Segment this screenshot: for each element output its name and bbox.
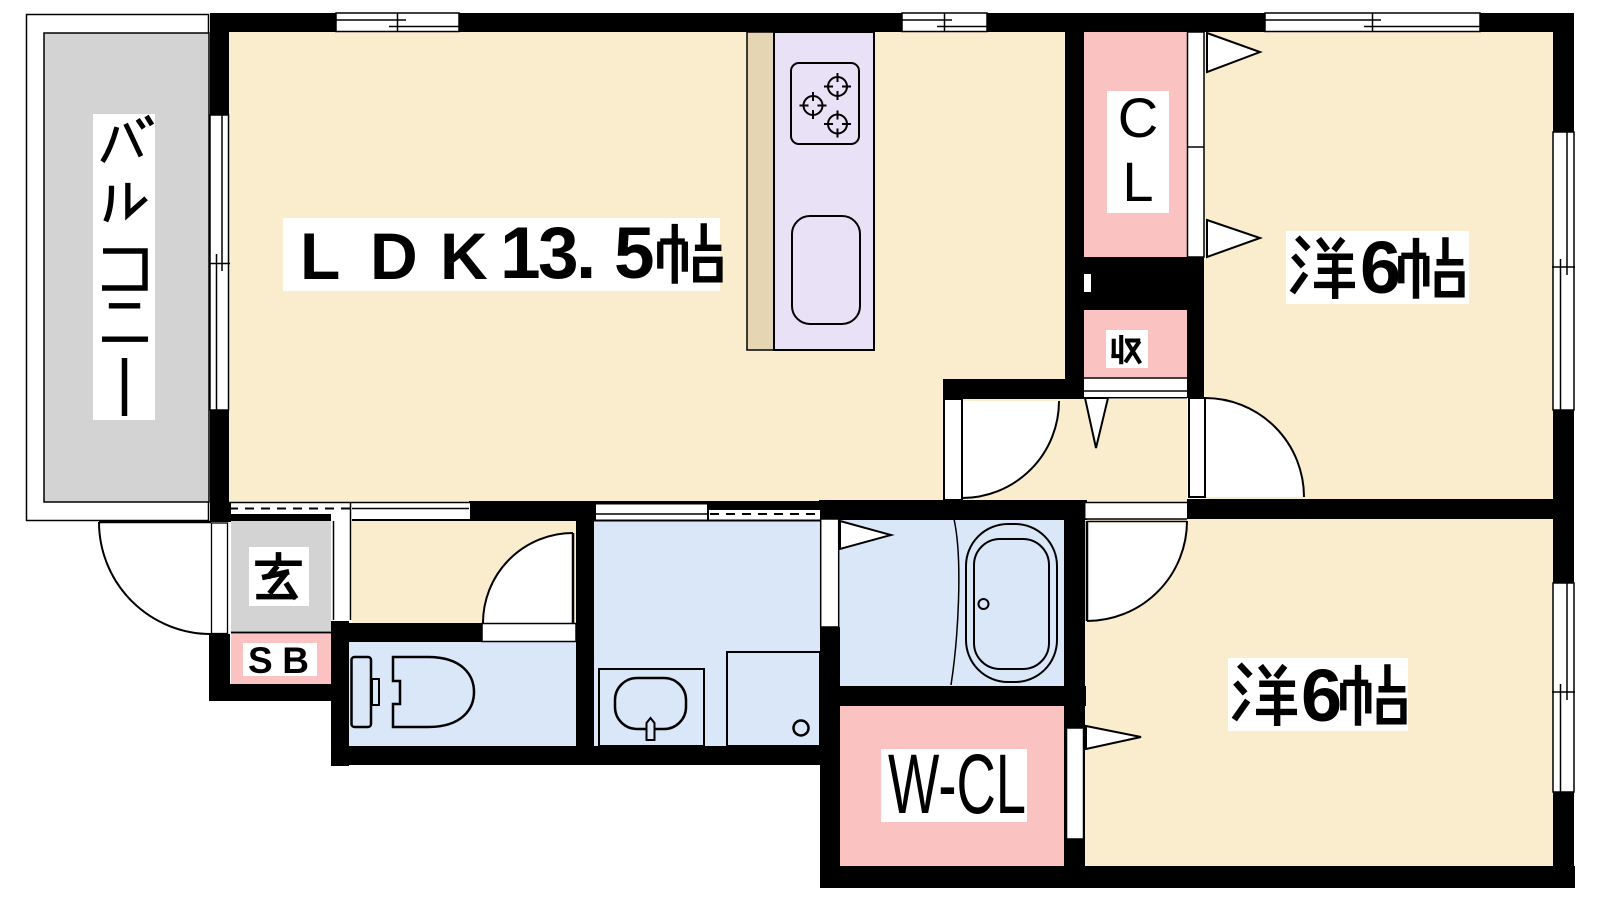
svg-text:5: 5: [614, 213, 655, 294]
svg-text:L: L: [1122, 150, 1153, 213]
svg-text:C: C: [1118, 86, 1158, 149]
svg-text:K: K: [440, 219, 488, 293]
svg-text:D: D: [370, 219, 418, 293]
svg-text:6: 6: [1360, 226, 1401, 309]
svg-text:.: .: [576, 213, 596, 294]
svg-text:1: 1: [500, 213, 541, 294]
svg-text:6: 6: [1301, 654, 1342, 737]
svg-text:3: 3: [538, 213, 579, 294]
svg-text:L: L: [300, 219, 340, 293]
svg-text:W-CL: W-CL: [888, 737, 1026, 831]
svg-text:S B: S B: [248, 640, 309, 681]
